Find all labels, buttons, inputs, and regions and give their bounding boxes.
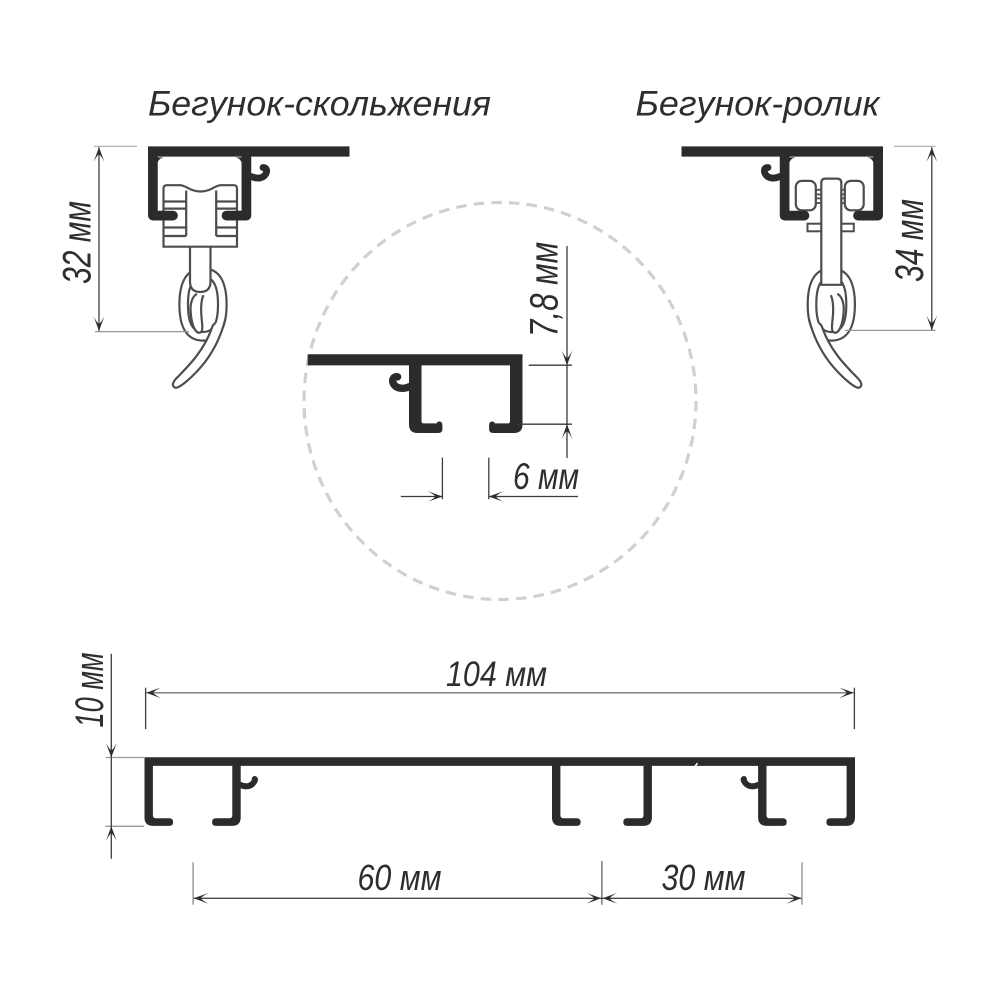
svg-text:7,8 мм: 7,8 мм [523, 242, 567, 337]
svg-text:34 мм: 34 мм [888, 199, 932, 282]
svg-text:10 мм: 10 мм [68, 653, 112, 728]
svg-text:32 мм: 32 мм [56, 201, 100, 284]
svg-text:60 мм: 60 мм [358, 857, 442, 898]
svg-text:Бегунок-скольжения: Бегунок-скольжения [148, 85, 491, 124]
svg-text:Бегунок-ролик: Бегунок-ролик [636, 85, 882, 124]
svg-text:104 мм: 104 мм [446, 655, 547, 694]
svg-text:6 мм: 6 мм [513, 456, 579, 497]
svg-text:30 мм: 30 мм [662, 857, 746, 898]
